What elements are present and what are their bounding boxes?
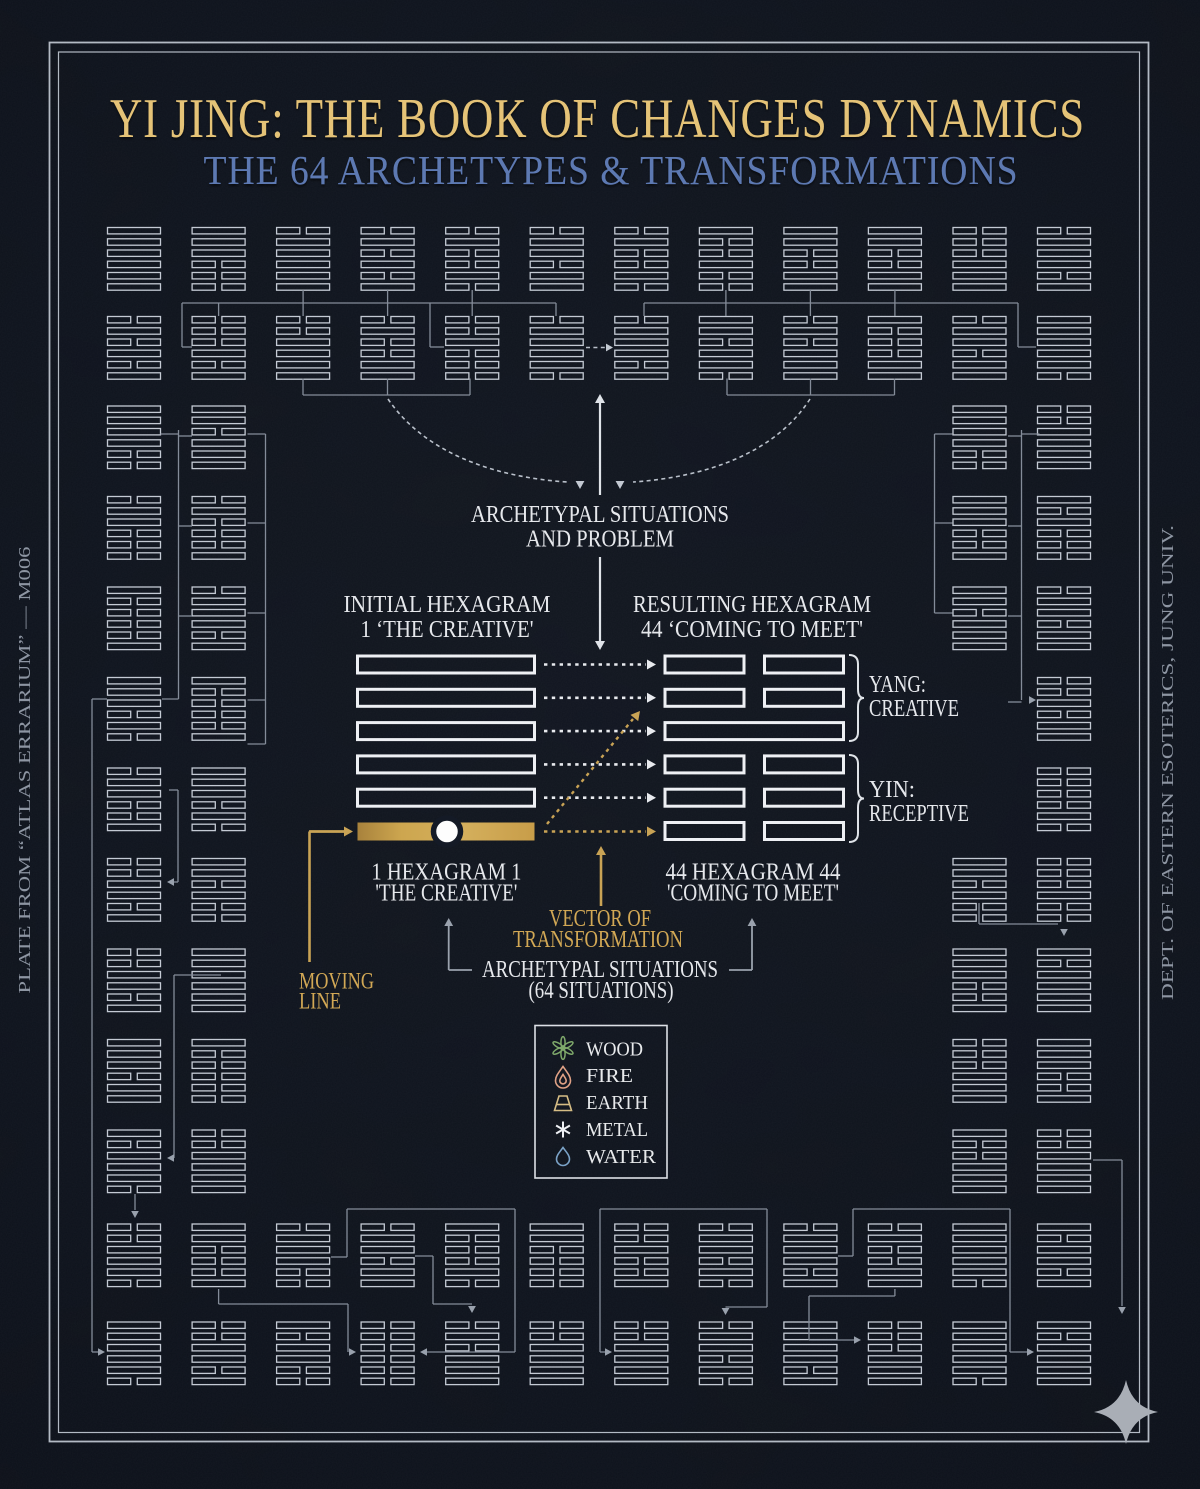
svg-text:YI JING: THE BOOK OF CHANGES D: YI JING: THE BOOK OF CHANGES DYNAMICS [110, 88, 1085, 150]
svg-text:PLATE FROM “ATLAS ERRARIUM” —: PLATE FROM “ATLAS ERRARIUM” — M006 [15, 547, 34, 994]
svg-text:YIN:: YIN: [869, 777, 915, 803]
svg-text:TRANSFORMATION: TRANSFORMATION [513, 927, 683, 953]
svg-text:METAL: METAL [586, 1120, 648, 1141]
svg-text:THE 64 ARCHETYPES & TRANSFORMA: THE 64 ARCHETYPES & TRANSFORMATIONS [204, 147, 1019, 193]
svg-text:WOOD: WOOD [586, 1039, 643, 1060]
svg-text:EARTH: EARTH [586, 1093, 648, 1114]
svg-text:(64 SITUATIONS): (64 SITUATIONS) [529, 978, 674, 1004]
svg-text:WATER: WATER [586, 1147, 656, 1168]
svg-text:INITIAL HEXAGRAM: INITIAL HEXAGRAM [344, 592, 551, 618]
svg-text:YANG:: YANG: [869, 672, 926, 698]
svg-text:'COMING TO MEET': 'COMING TO MEET' [667, 881, 839, 907]
svg-text:RECEPTIVE: RECEPTIVE [869, 801, 969, 827]
svg-text:CREATIVE: CREATIVE [869, 696, 959, 722]
svg-text:ARCHETYPAL SITUATIONS: ARCHETYPAL SITUATIONS [471, 502, 729, 528]
svg-text:LINE: LINE [299, 989, 341, 1014]
svg-text:44 ‘COMING TO MEET': 44 ‘COMING TO MEET' [641, 617, 863, 643]
svg-text:FIRE: FIRE [586, 1066, 633, 1087]
svg-text:1 ‘THE CREATIVE': 1 ‘THE CREATIVE' [361, 617, 534, 643]
svg-text:RESULTING HEXAGRAM: RESULTING HEXAGRAM [633, 592, 871, 618]
svg-text:AND PROBLEM: AND PROBLEM [526, 527, 674, 553]
svg-text:DEPT. OF EASTERN ESOTERICS, JU: DEPT. OF EASTERN ESOTERICS, JUNG UNIV. [1158, 525, 1177, 1000]
svg-text:'THE CREATIVE': 'THE CREATIVE' [375, 881, 517, 907]
